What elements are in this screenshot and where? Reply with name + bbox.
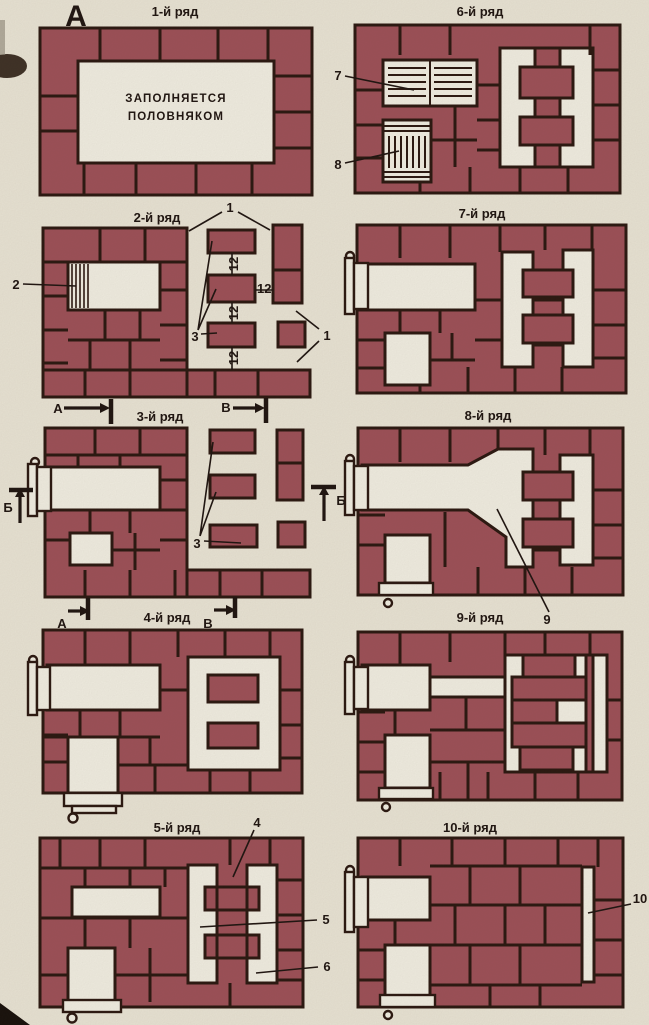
scanned-page: А 1-й ряд ЗАПОЛНЯЕТСЯ ПОЛОВНЯКОМ 2-й ряд… [0,0,649,1025]
masonry-diagram: А 1-й ряд ЗАПОЛНЯЕТСЯ ПОЛОВНЯКОМ 2-й ряд… [0,0,649,1025]
paper-grain-overlay [0,0,649,1025]
